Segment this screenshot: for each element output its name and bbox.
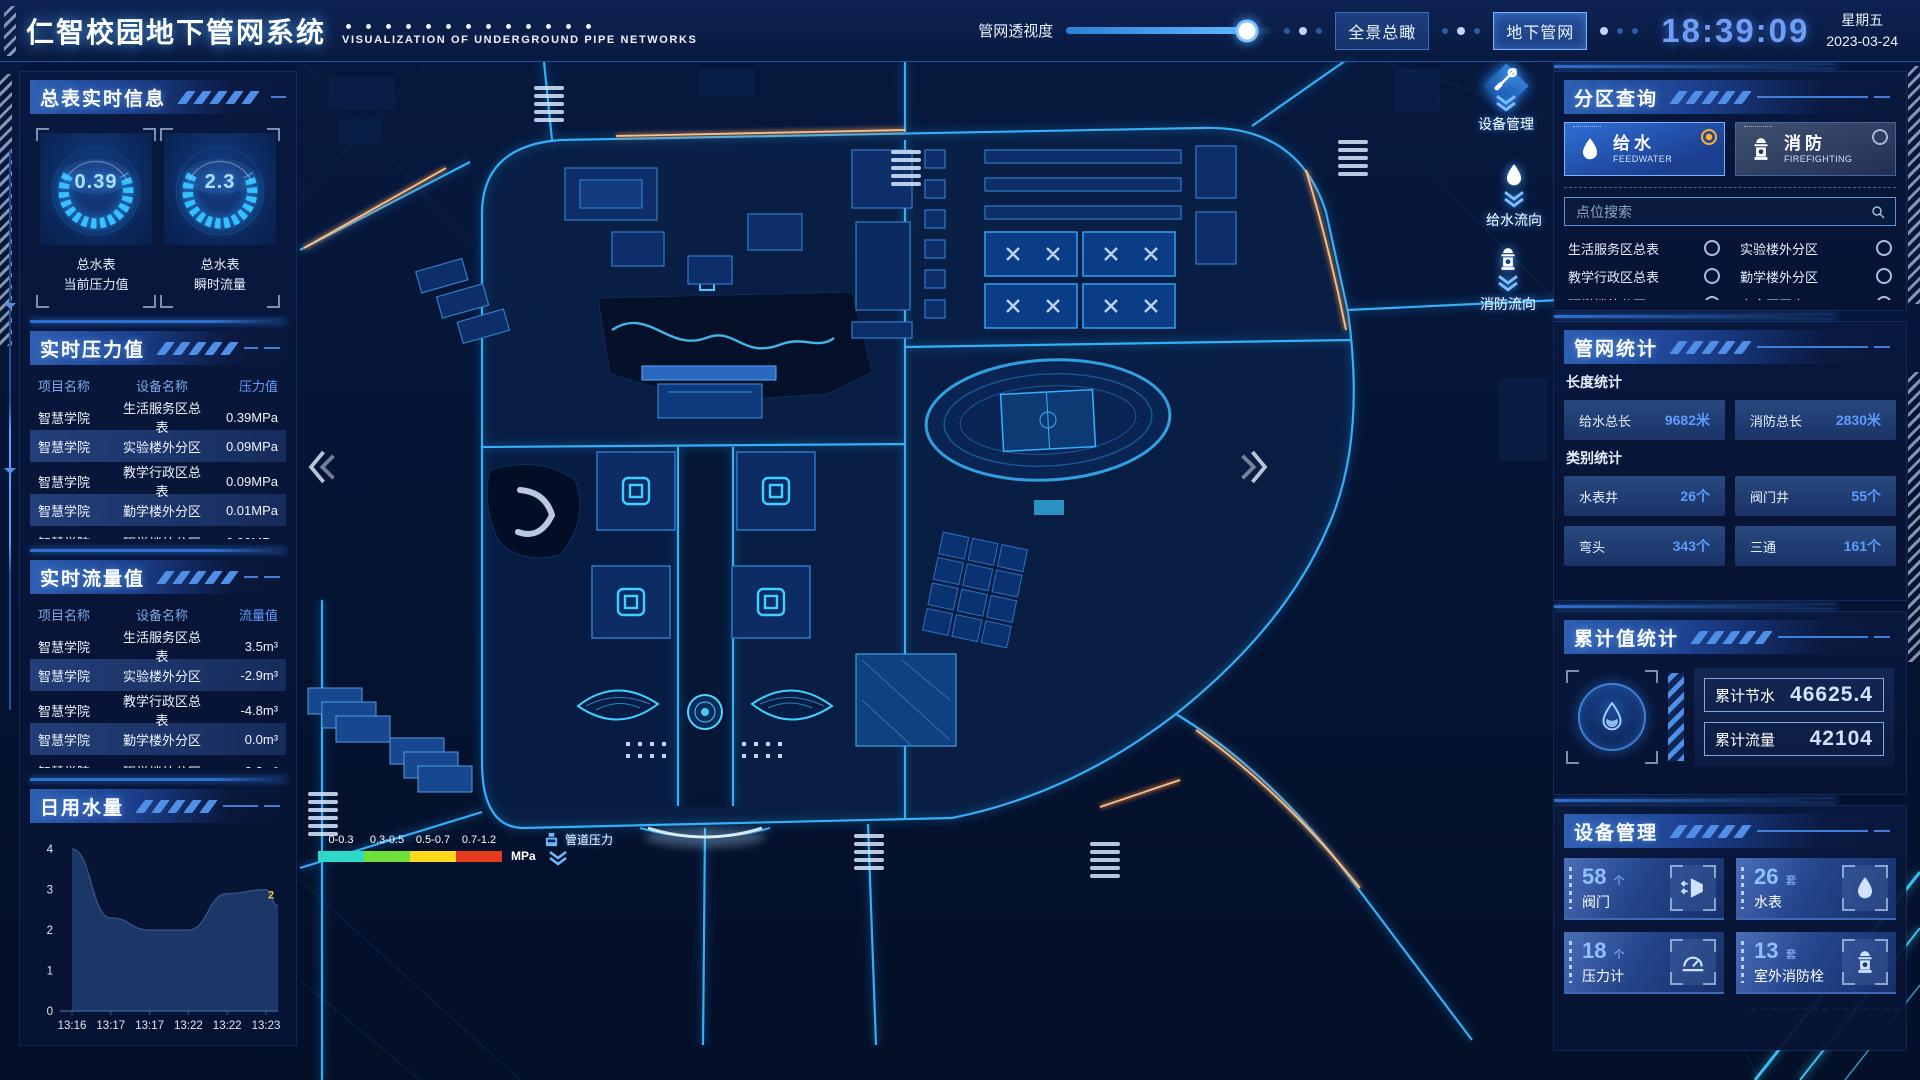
svg-text:2: 2 [47, 925, 53, 937]
underground-network-button[interactable]: 地下管网 [1493, 12, 1587, 50]
legend-segment [318, 851, 364, 862]
clock: 18:39:09 [1661, 12, 1809, 50]
radio-icon [1704, 296, 1720, 300]
pipe-pressure-label: 管道压力 [565, 831, 613, 848]
map-marker-2[interactable]: 消防流向 [1480, 246, 1536, 314]
water-drop-icon [1578, 683, 1646, 751]
point-item[interactable]: 砺学楼外分区 [1568, 290, 1720, 300]
app-title: 仁智校园地下管网系统 [26, 11, 326, 51]
legend-segment [364, 851, 410, 862]
hydrant-icon [1748, 134, 1774, 164]
gauge-label: 总水表瞬时流量 [194, 255, 246, 294]
radio-icon [1872, 129, 1888, 145]
table-row[interactable]: 智慧学院砺学楼外分区0.00MPa [30, 526, 286, 539]
gauge-dial-icon: 2.3 [164, 133, 276, 245]
water-drop-icon [1501, 162, 1527, 188]
legend-label: 0-0.3 [318, 834, 364, 846]
weekday: 星期五 [1826, 10, 1898, 31]
pipe-stats-section: 管网统计 长度统计 给水总长9682米消防总长2830米 类别统计 水表井26个… [1554, 322, 1906, 600]
pressure-table-header: 项目名称设备名称压力值 [30, 371, 286, 398]
svg-text:13:17: 13:17 [96, 1020, 125, 1032]
chevron-double-down-icon [546, 850, 570, 866]
svg-text:4: 4 [47, 844, 54, 856]
dot-separator [1600, 27, 1638, 35]
transparency-label: 管网透视度 [978, 20, 1053, 41]
device-card[interactable]: 26套水表 [1736, 858, 1896, 920]
divider [30, 549, 286, 552]
radio-icon [1704, 240, 1720, 256]
device-card[interactable]: 58个阀门 [1564, 858, 1724, 920]
stat-box: 阀门井55个 [1735, 476, 1896, 516]
zone-tab-firefighting[interactable]: 消防FIREFIGHTING [1735, 122, 1896, 176]
stat-box: 给水总长9682米 [1564, 400, 1725, 440]
section-header-flow: 实时流量值 [30, 560, 286, 594]
svg-text:13:16: 13:16 [58, 1020, 87, 1032]
radio-icon [1704, 268, 1720, 284]
section-header-meter-info: 总表实时信息 [30, 80, 286, 114]
point-item[interactable]: 宿舍区泵房 [1740, 290, 1892, 300]
legend-label: 0.5-0.7 [410, 834, 456, 846]
gauge-value: 2.3 [164, 171, 276, 194]
valve-icon [1670, 865, 1716, 911]
cumulative-section: 累计值统计 累计节水46625.4累计流量42104 [1554, 612, 1906, 794]
map-marker-label: 设备管理 [1478, 114, 1534, 134]
stat-box: 弯头343个 [1564, 526, 1725, 566]
stat-box: 消防总长2830米 [1735, 400, 1896, 440]
pressure-table: 项目名称设备名称压力值 智慧学院生活服务区总表0.39MPa智慧学院实验楼外分区… [30, 371, 286, 539]
map-marker-label: 给水流向 [1486, 210, 1542, 230]
meter-gauge: 0.39 总水表当前压力值 [36, 128, 156, 308]
search-input[interactable] [1574, 203, 1862, 221]
triangle-marker-icon [4, 468, 16, 480]
map-marker-label: 消防流向 [1480, 294, 1536, 314]
right-edge-deco [1908, 372, 1920, 662]
map-prev-arrow[interactable] [306, 446, 336, 488]
transparency-slider[interactable] [1066, 27, 1271, 34]
zone-tab-feedwater[interactable]: 给水FEEDWATER [1564, 122, 1725, 176]
pond [487, 464, 580, 557]
date: 2023-03-24 [1826, 31, 1898, 52]
point-item[interactable]: 教学行政区总表 [1568, 262, 1720, 290]
meter-gauges: 0.39 总水表当前压力值 2.3 总水表瞬时流量 [30, 120, 286, 310]
pressure-legend: 0-0.30.3-0.50.5-0.70.7-1.2 MPa [318, 834, 536, 863]
header: 仁智校园地下管网系统 VISUALIZATION OF UNDERGROUND … [0, 0, 1920, 62]
pressure-gauge-icon [1670, 939, 1716, 985]
triangle-marker-icon [4, 303, 16, 315]
section-header-pipe-stats: 管网统计 [1564, 330, 1896, 364]
gauge-dial-icon: 0.39 [40, 133, 152, 245]
point-item[interactable]: 生活服务区总表 [1568, 234, 1720, 262]
wrench-icon [1493, 66, 1519, 92]
dot-separator [1284, 27, 1322, 35]
svg-text:3: 3 [47, 885, 53, 897]
point-item[interactable]: 勤学楼外分区 [1740, 262, 1892, 290]
hydrant-icon [1495, 246, 1521, 272]
svg-text:13:22: 13:22 [174, 1020, 203, 1032]
table-row[interactable]: 智慧学院生活服务区总表0.39MPa [30, 398, 286, 430]
category-stats-label: 类别统计 [1564, 448, 1896, 468]
legend-segment [410, 851, 456, 862]
divider [30, 778, 286, 781]
search-icon[interactable] [1870, 204, 1886, 220]
section-header-devices: 设备管理 [1564, 814, 1896, 848]
daily-water-chart: 0123413:1613:1713:1713:2213:2213:232 [30, 829, 286, 1046]
map-next-arrow[interactable] [1240, 446, 1270, 488]
stat-box: 三通161个 [1735, 526, 1896, 566]
svg-text:0: 0 [47, 1006, 53, 1018]
table-row[interactable]: 智慧学院砺学楼外分区2.3m³ [30, 755, 286, 768]
water-drop-badge [1566, 670, 1658, 764]
svg-text:2: 2 [268, 890, 274, 902]
point-item[interactable]: 实验楼外分区 [1740, 234, 1892, 262]
left-panel: 总表实时信息 0.39 总水表当前压力值 2.3 总水表瞬时 [20, 72, 296, 1045]
table-row[interactable]: 智慧学院教学行政区总表-4.8m³ [30, 691, 286, 723]
water-meter-icon [1842, 865, 1888, 911]
legend-unit: MPa [511, 849, 536, 863]
chevron-double-down-icon [1500, 190, 1528, 208]
cumulative-row: 累计节水46625.4 [1704, 678, 1884, 712]
app: 仁智校园地下管网系统 VISUALIZATION OF UNDERGROUND … [0, 0, 1920, 1080]
radio-icon [1876, 296, 1892, 300]
chevron-double-down-icon [1494, 274, 1522, 292]
dot-separ ator [1442, 27, 1480, 35]
chevron-double-down-icon [1492, 94, 1520, 112]
legend-label: 0.7-1.2 [456, 834, 502, 846]
cumulative-row: 累计流量42104 [1704, 722, 1884, 756]
legend-segment [456, 851, 502, 862]
flow-table-header: 项目名称设备名称流量值 [30, 600, 286, 627]
dashed-divider [1564, 187, 1896, 188]
slider-thumb-icon[interactable] [1235, 19, 1258, 42]
zone-query-section: 分区查询 给水FEEDWATER 消防FIREFIGHTING 生活服务区总表实… [1554, 72, 1906, 310]
app-subtitle: VISUALIZATION OF UNDERGROUND PIPE NETWOR… [342, 34, 697, 46]
device-card[interactable]: 18个压力计 [1564, 932, 1724, 994]
right-edge-deco [1908, 66, 1920, 304]
radio-icon [1701, 129, 1717, 145]
device-management-section: 设备管理 58个阀门 26套水表 18个压力计 13套室外消防栓 [1554, 806, 1906, 1050]
divider [30, 320, 286, 323]
svg-text:13:23: 13:23 [252, 1020, 281, 1032]
svg-text:13:22: 13:22 [213, 1020, 242, 1032]
pipe-pressure-marker[interactable]: 管道压力 [544, 831, 613, 866]
section-header-cumulative: 累计值统计 [1564, 620, 1896, 654]
stripe-divider [1668, 673, 1684, 761]
length-stats-label: 长度统计 [1564, 372, 1896, 392]
pressure-device-icon [544, 832, 559, 847]
map-marker-1[interactable]: 给水流向 [1486, 162, 1542, 230]
header-edge-deco [4, 6, 16, 56]
radio-icon [1876, 268, 1892, 284]
table-row[interactable]: 智慧学院教学行政区总表0.09MPa [30, 462, 286, 494]
legend-label: 0.3-0.5 [364, 834, 410, 846]
svg-text:1: 1 [47, 966, 53, 978]
header-dots [346, 24, 697, 29]
device-card[interactable]: 13套室外消防栓 [1736, 932, 1896, 994]
left-scroll-line[interactable] [9, 150, 11, 710]
water-drop-icon [1577, 134, 1603, 164]
gauge-label: 总水表当前压力值 [63, 255, 128, 294]
section-header-daily-water: 日用水量 [30, 789, 286, 823]
table-row[interactable]: 智慧学院生活服务区总表3.5m³ [30, 627, 286, 659]
meter-gauge: 2.3 总水表瞬时流量 [160, 128, 280, 308]
stat-box: 水表井26个 [1564, 476, 1725, 516]
svg-text:13:17: 13:17 [135, 1020, 164, 1032]
point-search[interactable] [1564, 197, 1896, 226]
right-panel: 分区查询 给水FEEDWATER 消防FIREFIGHTING 生活服务区总表实… [1554, 72, 1906, 1050]
hydrant-icon [1842, 939, 1888, 985]
flow-table: 项目名称设备名称流量值 智慧学院生活服务区总表3.5m³智慧学院实验楼外分区-2… [30, 600, 286, 768]
section-header-zone-query: 分区查询 [1564, 80, 1896, 114]
map-marker-0[interactable]: 设备管理 [1478, 66, 1534, 134]
radio-icon [1876, 240, 1892, 256]
section-header-pressure: 实时压力值 [30, 331, 286, 365]
panorama-button[interactable]: 全景总瞰 [1335, 12, 1429, 50]
gauge-value: 0.39 [40, 171, 152, 194]
